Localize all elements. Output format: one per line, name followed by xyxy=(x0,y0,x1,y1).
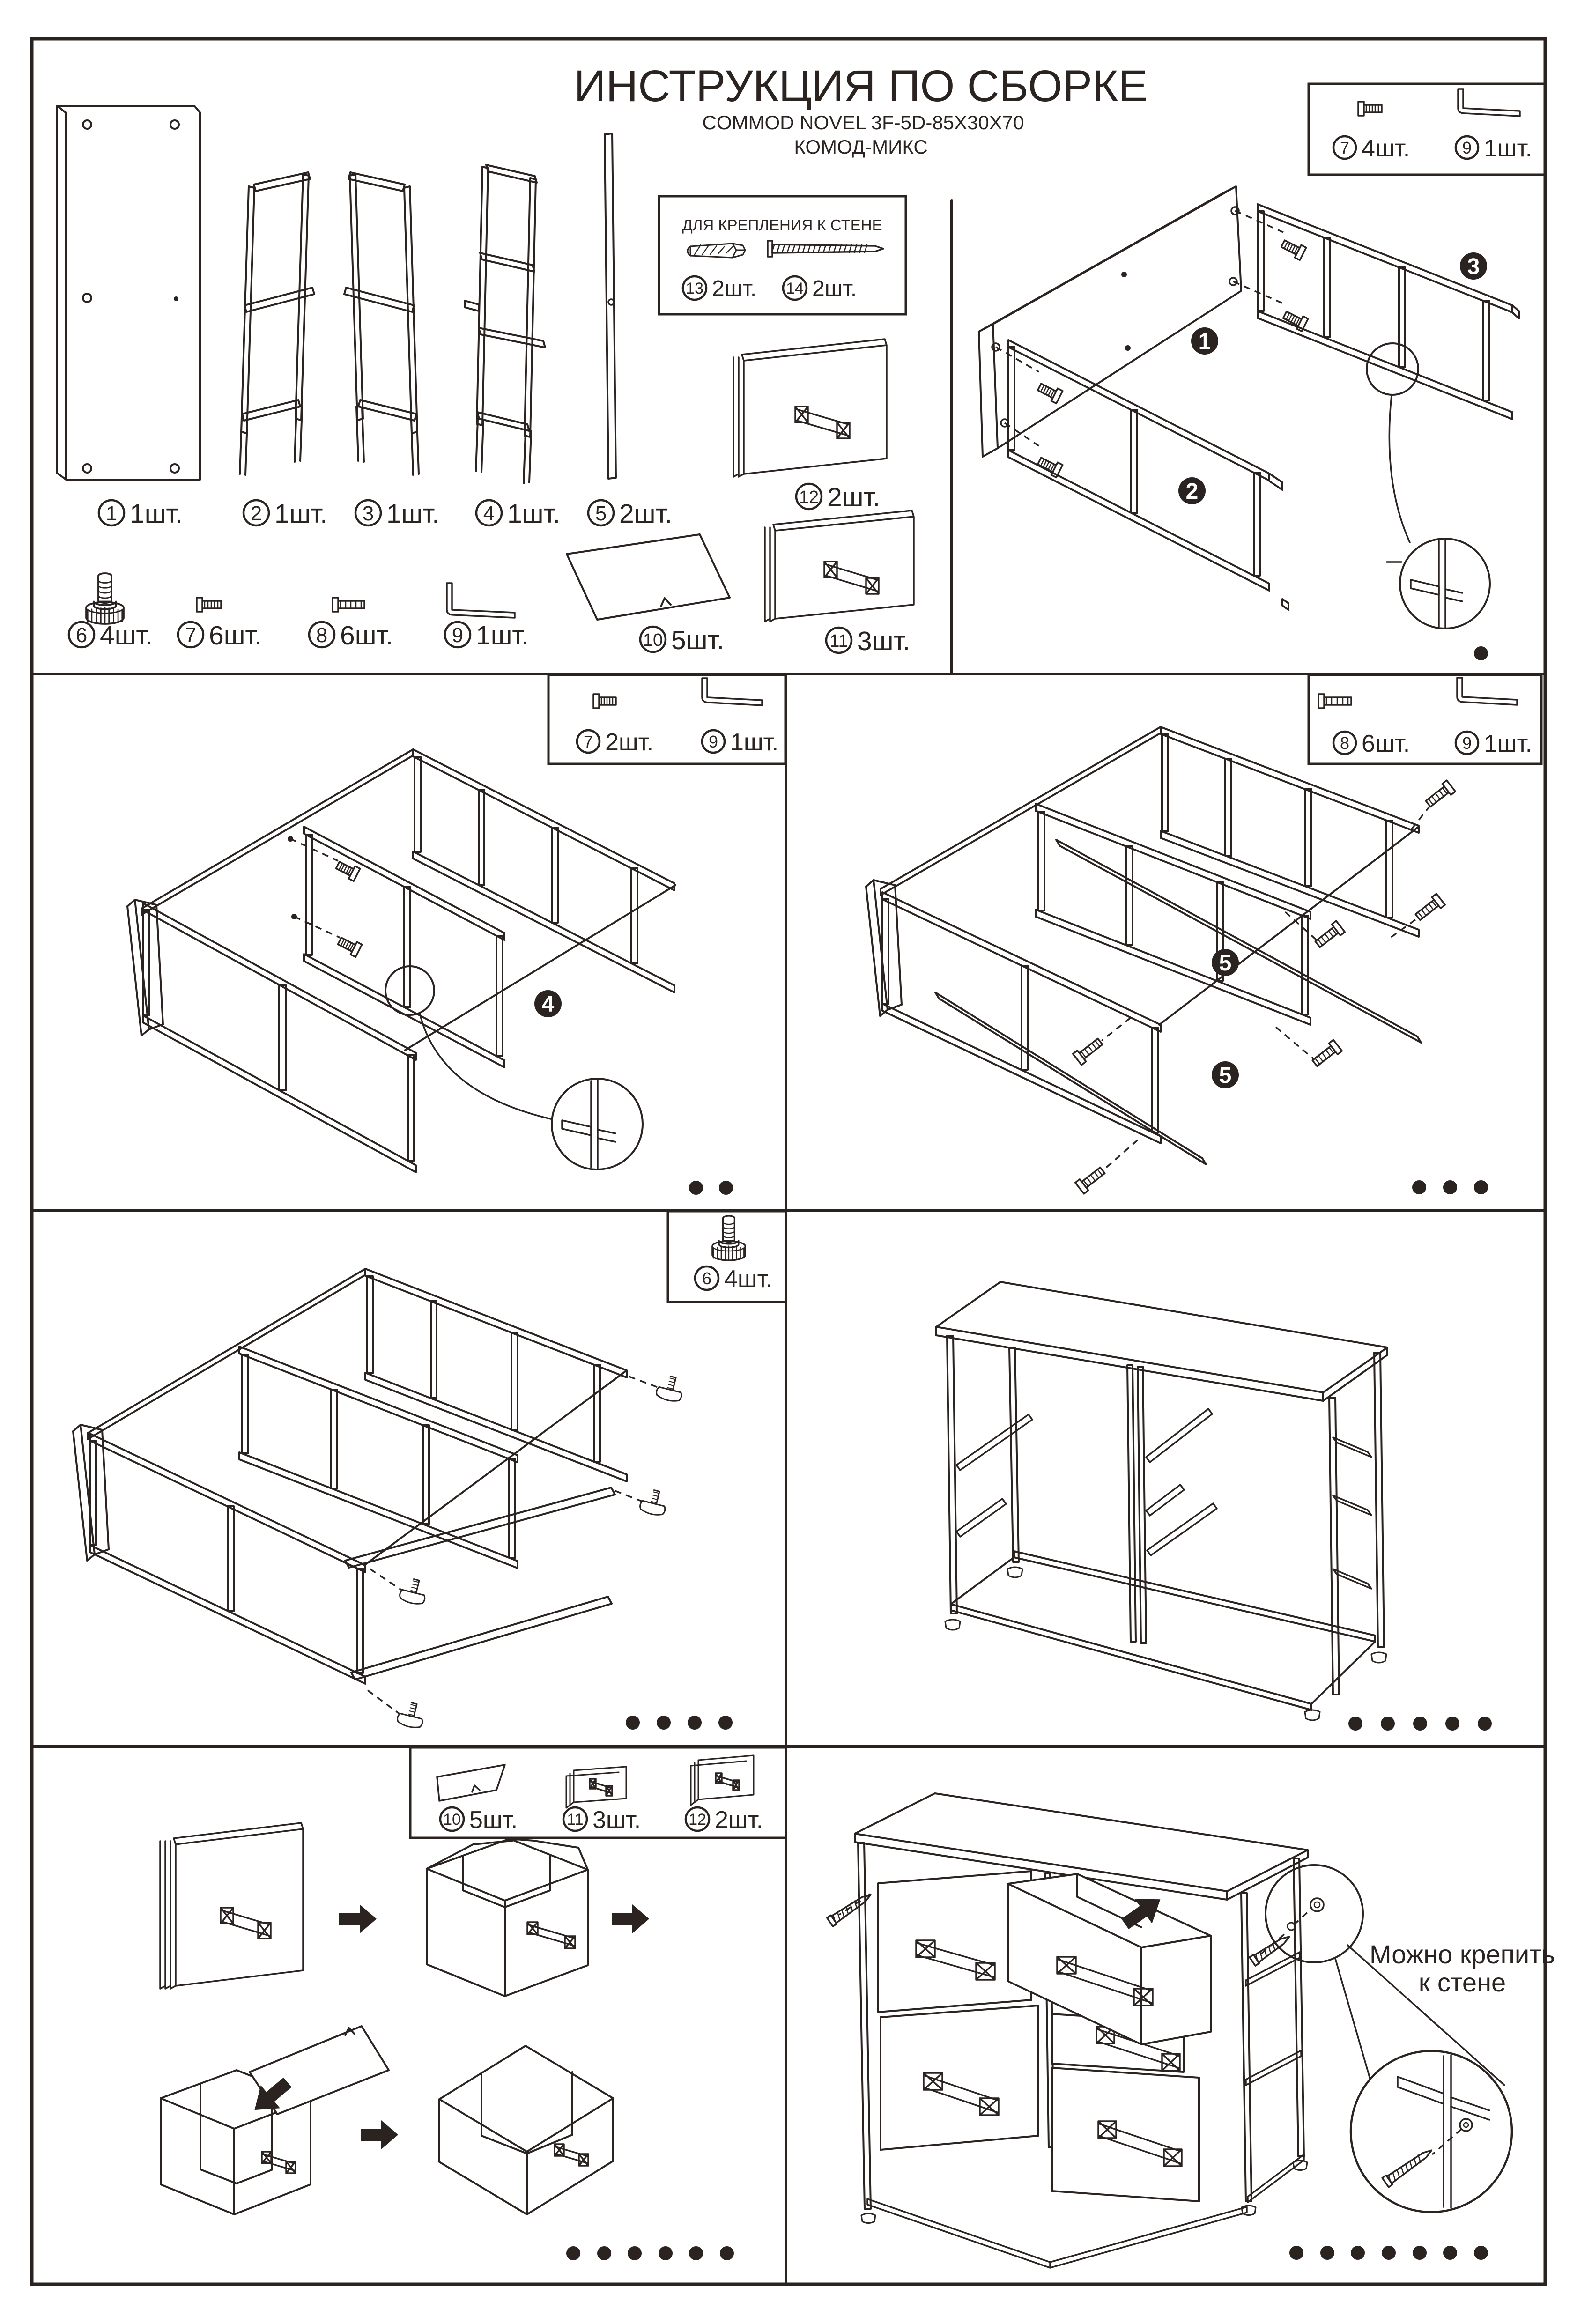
svg-text:9: 9 xyxy=(452,624,463,647)
svg-text:1шт.: 1шт. xyxy=(386,499,439,529)
svg-text:КОМОД-МИКС: КОМОД-МИКС xyxy=(794,136,927,158)
svg-text:1шт.: 1шт. xyxy=(730,729,778,756)
svg-text:14: 14 xyxy=(786,280,804,297)
svg-text:4шт.: 4шт. xyxy=(1362,135,1410,162)
svg-text:2: 2 xyxy=(251,502,262,525)
svg-text:2шт.: 2шт. xyxy=(619,499,672,529)
svg-text:6шт.: 6шт. xyxy=(340,621,393,651)
svg-text:Можно крепить: Можно крепить xyxy=(1370,1939,1555,1969)
svg-text:6шт.: 6шт. xyxy=(209,621,262,651)
svg-text:1: 1 xyxy=(1199,329,1211,354)
svg-text:1шт.: 1шт. xyxy=(476,621,529,651)
svg-text:12: 12 xyxy=(689,1811,706,1828)
svg-text:10: 10 xyxy=(443,1811,461,1828)
svg-text:1шт.: 1шт. xyxy=(507,499,560,529)
svg-text:2шт.: 2шт. xyxy=(827,482,880,512)
svg-text:9: 9 xyxy=(1462,138,1472,157)
svg-text:5: 5 xyxy=(595,502,607,525)
svg-text:4: 4 xyxy=(483,502,495,525)
svg-text:1шт.: 1шт. xyxy=(130,499,183,529)
svg-text:7: 7 xyxy=(584,732,593,751)
svg-text:6: 6 xyxy=(76,624,87,647)
svg-text:12: 12 xyxy=(799,488,819,507)
svg-text:8: 8 xyxy=(1340,733,1349,753)
svg-text:6: 6 xyxy=(702,1269,711,1288)
svg-text:5: 5 xyxy=(1219,951,1232,976)
svg-text:9: 9 xyxy=(709,732,718,751)
svg-text:2шт.: 2шт. xyxy=(605,729,653,756)
svg-text:ИНСТРУКЦИЯ ПО СБОРКЕ: ИНСТРУКЦИЯ ПО СБОРКЕ xyxy=(574,61,1148,111)
svg-text:8: 8 xyxy=(316,624,327,647)
svg-text:11: 11 xyxy=(567,1811,583,1828)
svg-text:5шт.: 5шт. xyxy=(469,1806,518,1834)
svg-text:5шт.: 5шт. xyxy=(671,625,724,655)
svg-text:4шт.: 4шт. xyxy=(100,621,153,651)
svg-text:6шт.: 6шт. xyxy=(1362,730,1410,757)
svg-text:2шт.: 2шт. xyxy=(812,276,857,301)
svg-text:1: 1 xyxy=(106,502,117,525)
svg-text:11: 11 xyxy=(829,631,848,651)
svg-text:1шт.: 1шт. xyxy=(1484,135,1532,162)
svg-text:4: 4 xyxy=(542,992,555,1017)
svg-text:3шт.: 3шт. xyxy=(857,626,910,656)
svg-text:1шт.: 1шт. xyxy=(274,499,327,529)
svg-text:3: 3 xyxy=(1467,254,1480,279)
svg-text:2шт.: 2шт. xyxy=(712,276,756,301)
svg-text:3шт.: 3шт. xyxy=(592,1806,641,1834)
svg-text:2шт.: 2шт. xyxy=(715,1806,763,1834)
svg-text:1шт.: 1шт. xyxy=(1484,730,1532,757)
svg-text:5: 5 xyxy=(1219,1063,1232,1088)
svg-text:к стене: к стене xyxy=(1419,1968,1506,1997)
svg-text:COMMOD NOVEL 3F-5D-85X30X70: COMMOD NOVEL 3F-5D-85X30X70 xyxy=(703,111,1024,133)
svg-text:3: 3 xyxy=(363,502,374,525)
svg-text:13: 13 xyxy=(686,280,703,297)
svg-text:4шт.: 4шт. xyxy=(724,1266,772,1293)
svg-text:9: 9 xyxy=(1462,733,1472,753)
svg-text:10: 10 xyxy=(643,630,663,650)
svg-text:ДЛЯ КРЕПЛЕНИЯ К СТЕНЕ: ДЛЯ КРЕПЛЕНИЯ К СТЕНЕ xyxy=(682,216,882,234)
svg-text:7: 7 xyxy=(1340,138,1349,157)
svg-text:7: 7 xyxy=(185,624,196,647)
svg-text:2: 2 xyxy=(1186,479,1199,504)
